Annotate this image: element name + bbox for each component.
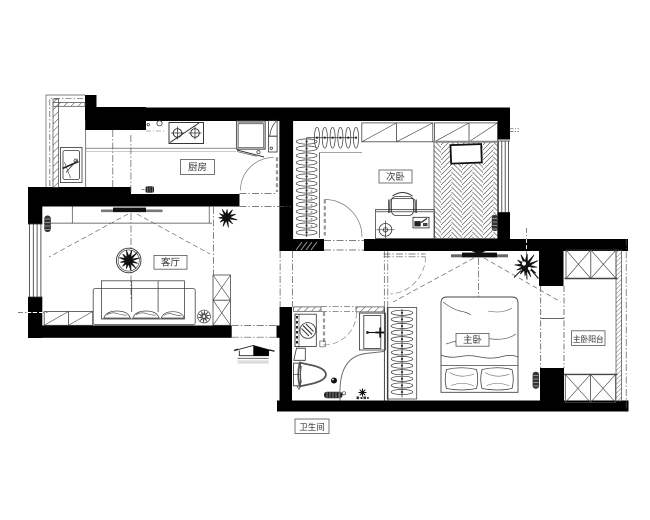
svg-text:主卧阳台: 主卧阳台 — [573, 334, 604, 344]
svg-text:厨房: 厨房 — [188, 162, 207, 174]
svg-text:次卧: 次卧 — [386, 171, 406, 183]
svg-text:主卧: 主卧 — [463, 334, 483, 346]
svg-text:卫生间: 卫生间 — [299, 422, 325, 432]
svg-text:客厅: 客厅 — [161, 257, 181, 269]
